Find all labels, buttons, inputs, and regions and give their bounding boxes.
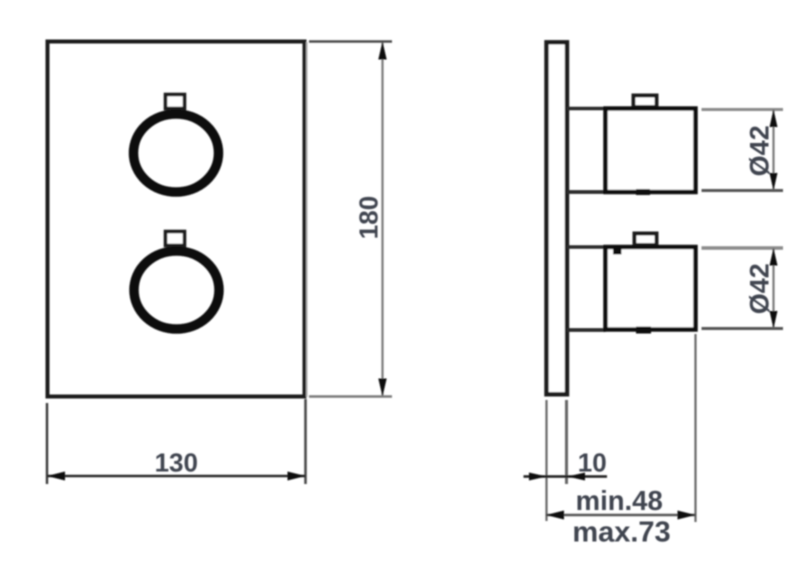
svg-text:min.48: min.48: [576, 485, 663, 516]
svg-text:130: 130: [155, 448, 198, 478]
svg-text:10: 10: [578, 448, 607, 478]
svg-text:Ø42: Ø42: [745, 125, 775, 176]
svg-text:Ø42: Ø42: [745, 263, 775, 314]
svg-text:180: 180: [354, 196, 384, 239]
svg-text:max.73: max.73: [572, 517, 670, 549]
